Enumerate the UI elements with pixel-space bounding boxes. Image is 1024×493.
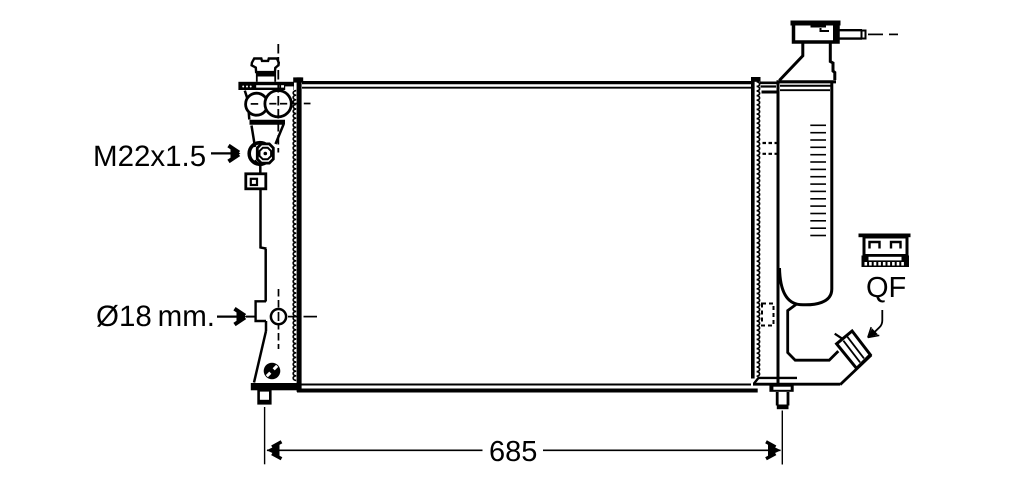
svg-text:M22x1.5: M22x1.5 xyxy=(93,140,206,173)
svg-text:Ø18 mm.: Ø18 mm. xyxy=(96,300,215,333)
svg-text:QF: QF xyxy=(866,272,906,304)
svg-text:685: 685 xyxy=(489,436,537,468)
